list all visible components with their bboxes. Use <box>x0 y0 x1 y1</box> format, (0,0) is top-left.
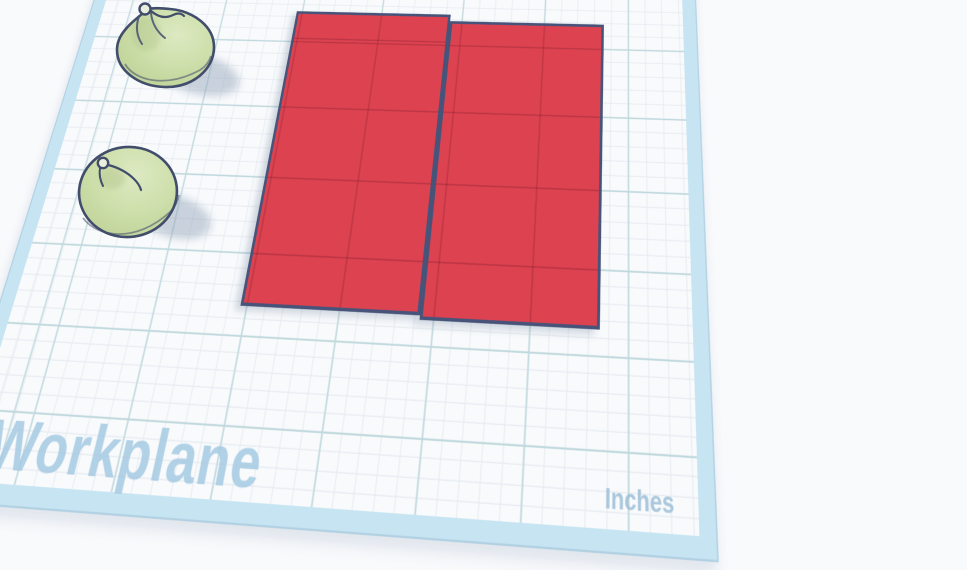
sphere-top-stem-loop <box>140 4 151 15</box>
viewport-3d[interactable]: Workplane Inches <box>0 0 967 570</box>
green-sphere-bottom[interactable] <box>74 141 216 247</box>
red-panel-right[interactable] <box>420 21 604 330</box>
units-label: Inches <box>605 485 675 519</box>
sphere-top-neck-shade <box>131 17 161 51</box>
sphere-top-body <box>117 8 214 87</box>
green-objects-layer <box>0 0 260 260</box>
sphere-bottom-stem-loop <box>98 158 108 168</box>
workplane-label: Workplane <box>0 410 268 501</box>
red-panel-left[interactable] <box>240 11 450 315</box>
green-sphere-top[interactable] <box>117 4 244 104</box>
